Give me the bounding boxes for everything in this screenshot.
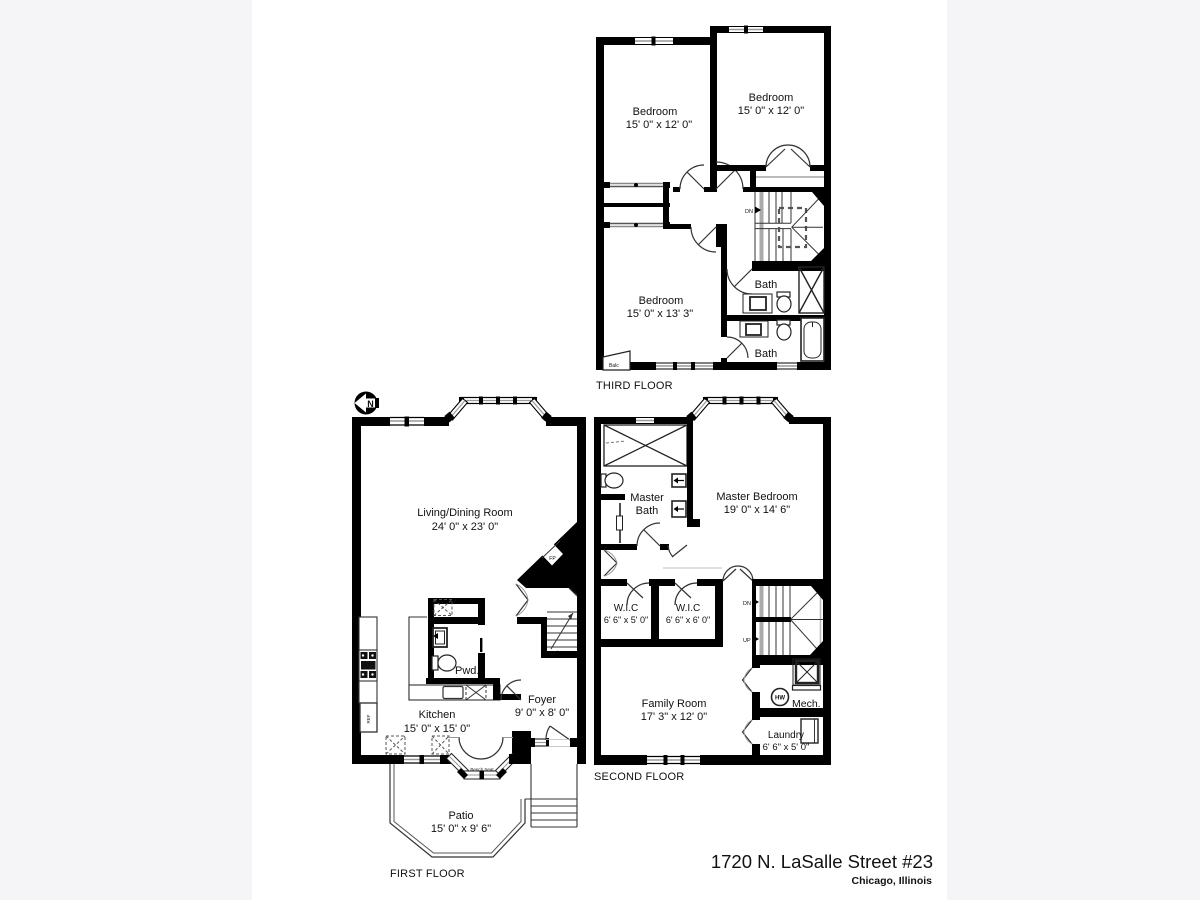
svg-text:Master Bedroom: Master Bedroom	[716, 491, 797, 503]
svg-text:Family Room: Family Room	[642, 698, 707, 710]
svg-text:Chicago, Illinois: Chicago, Illinois	[851, 875, 932, 887]
svg-text:REF: REF	[366, 714, 371, 723]
svg-text:Laundry: Laundry	[768, 730, 804, 741]
svg-text:15' 0" x 13' 3": 15' 0" x 13' 3"	[627, 308, 694, 320]
svg-text:15' 0" x 12' 0": 15' 0" x 12' 0"	[626, 119, 693, 131]
svg-text:15' 0" x 9' 6": 15' 0" x 9' 6"	[431, 823, 491, 835]
svg-text:Bench Seat: Bench Seat	[470, 767, 494, 772]
svg-text:W.I.C: W.I.C	[676, 603, 700, 614]
svg-text:W.I.C: W.I.C	[614, 603, 638, 614]
svg-text:Patio: Patio	[448, 810, 473, 822]
svg-text:Living/Dining Room: Living/Dining Room	[417, 507, 512, 519]
svg-text:FP: FP	[549, 556, 556, 562]
svg-text:HW: HW	[775, 696, 785, 702]
svg-text:Bath: Bath	[636, 505, 659, 517]
svg-text:N: N	[367, 399, 374, 409]
svg-text:6' 6" x 6' 0": 6' 6" x 6' 0"	[666, 615, 710, 625]
svg-text:15' 0" x 12' 0": 15' 0" x 12' 0"	[738, 105, 805, 117]
svg-text:6' 6" x 5' 0": 6' 6" x 5' 0"	[604, 615, 648, 625]
svg-text:THIRD FLOOR: THIRD FLOOR	[596, 380, 673, 392]
svg-text:FIRST FLOOR: FIRST FLOOR	[390, 868, 465, 880]
svg-text:Bedroom: Bedroom	[633, 106, 678, 118]
svg-text:24' 0" x 23' 0": 24' 0" x 23' 0"	[432, 521, 499, 533]
svg-text:Bath: Bath	[755, 348, 778, 360]
svg-text:Foyer: Foyer	[528, 694, 556, 706]
svg-text:17' 3" x 12' 0": 17' 3" x 12' 0"	[641, 711, 708, 723]
svg-text:Pwd.: Pwd.	[455, 665, 479, 677]
svg-text:Balc: Balc	[609, 363, 619, 369]
svg-text:DN: DN	[745, 209, 753, 215]
svg-text:Bedroom: Bedroom	[749, 92, 794, 104]
svg-text:6' 6" x 5' 0": 6' 6" x 5' 0"	[763, 742, 810, 753]
svg-text:Mech.: Mech.	[792, 698, 821, 710]
svg-text:Kitchen: Kitchen	[419, 709, 456, 721]
svg-text:SECOND FLOOR: SECOND FLOOR	[594, 771, 684, 783]
svg-text:9' 0" x 8' 0": 9' 0" x 8' 0"	[515, 707, 569, 719]
svg-text:Master: Master	[630, 492, 664, 504]
svg-text:15' 0" x 15' 0": 15' 0" x 15' 0"	[404, 723, 471, 735]
svg-text:Bath: Bath	[755, 279, 778, 291]
svg-text:UP: UP	[743, 638, 751, 644]
svg-text:UP: UP	[550, 651, 558, 657]
svg-text:19' 0" x 14' 6": 19' 0" x 14' 6"	[724, 504, 791, 516]
svg-text:DN: DN	[743, 601, 751, 607]
svg-text:1720 N. LaSalle Street #23: 1720 N. LaSalle Street #23	[711, 851, 933, 872]
svg-text:Bedroom: Bedroom	[639, 295, 684, 307]
